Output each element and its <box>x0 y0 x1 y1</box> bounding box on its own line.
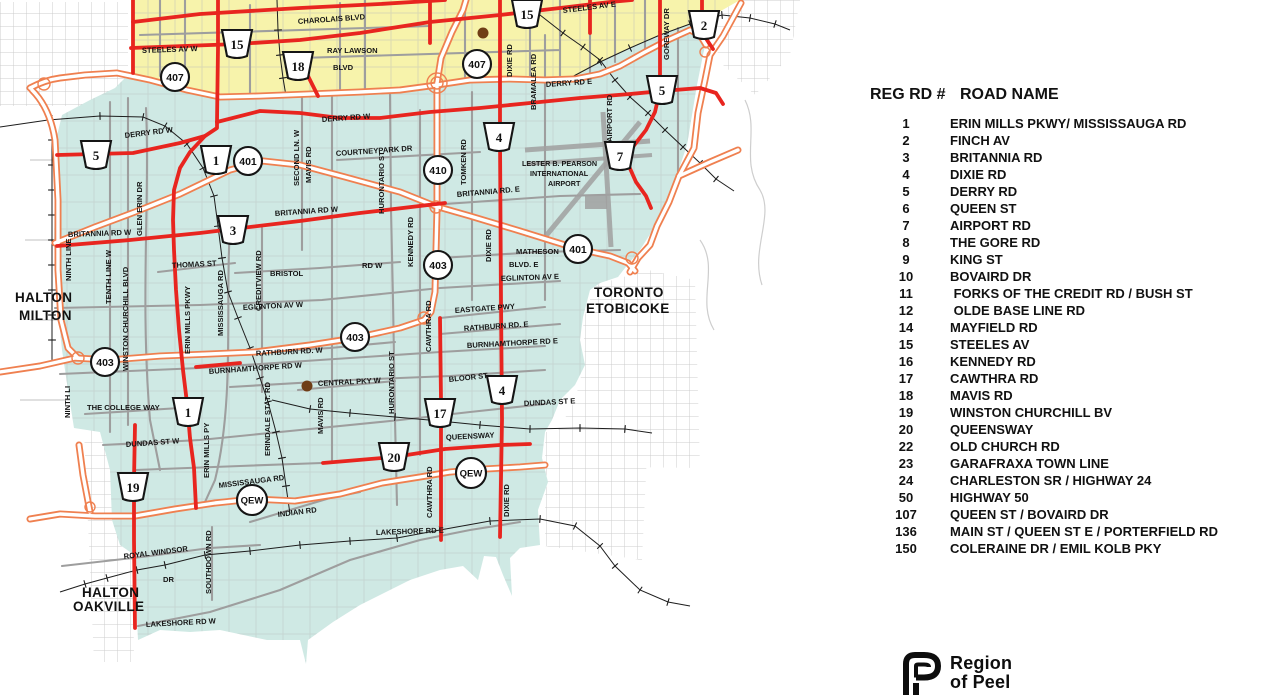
regional-road-shield: 17 <box>425 399 455 427</box>
shield-number: 3 <box>230 223 237 238</box>
road-label: DIXIE RD <box>502 484 511 517</box>
shield-number: 15 <box>231 37 245 52</box>
road-label: TOMKEN RD <box>459 139 468 185</box>
road-label: BRAMALEA RD <box>529 53 538 110</box>
legend-reg-number: 11 <box>868 285 944 302</box>
legend-road-name: GARAFRAXA TOWN LINE <box>944 456 1109 471</box>
shield-number: 7 <box>617 149 624 164</box>
shield-number: 410 <box>429 165 447 177</box>
area-label: OAKVILLE <box>73 599 144 614</box>
legend-col-road-name: ROAD NAME <box>960 86 1059 104</box>
legend-road-name: HIGHWAY 50 <box>944 490 1029 505</box>
shield-number: 18 <box>292 59 306 74</box>
road-label: INTERNATIONAL <box>530 169 589 178</box>
road-label: DUNDAS ST E <box>524 396 576 408</box>
shield-number: 17 <box>434 406 448 421</box>
logo-line2: of Peel <box>950 672 1010 692</box>
road-label: CAWTHRA RD <box>425 466 434 518</box>
legend-rows: 1ERIN MILLS PKWY/ MISSISSAUGA RD2FINCH A… <box>868 115 1268 557</box>
map-canvas: CHAROLAIS BLVDSTEELES AV WSTEELES AV ERA… <box>0 0 860 700</box>
legend-reg-number: 2 <box>868 132 944 149</box>
road-label: AIRPORT RD <box>605 94 614 142</box>
regional-road-shield: 1 <box>201 146 231 174</box>
regional-road-shield: 20 <box>379 443 409 471</box>
legend-row: 17CAWTHRA RD <box>868 370 1268 387</box>
regional-road-shield: 7 <box>605 142 635 170</box>
road-label: BRISTOL <box>270 269 304 278</box>
legend-reg-number: 4 <box>868 166 944 183</box>
legend-reg-number: 50 <box>868 489 944 506</box>
legend-reg-number: 24 <box>868 472 944 489</box>
landmark-dot <box>478 28 489 39</box>
legend-reg-number: 3 <box>868 149 944 166</box>
legend-road-name: QUEEN ST <box>944 201 1016 216</box>
legend-reg-number: 8 <box>868 234 944 251</box>
road-label: BLVD. E <box>509 260 538 269</box>
shield-number: QEW <box>460 469 483 480</box>
legend-row: 7AIRPORT RD <box>868 217 1268 234</box>
road-label: MISSISSAUGA RD <box>216 270 225 336</box>
legend-row: 3BRITANNIA RD <box>868 149 1268 166</box>
highway-shield: QEW <box>456 458 486 488</box>
logo-line1: Region <box>950 653 1012 673</box>
road-label: DR <box>163 575 174 584</box>
legend-reg-number: 5 <box>868 183 944 200</box>
highway-shield: 401 <box>564 235 592 263</box>
area-label: HALTON <box>82 585 139 600</box>
legend-road-name: CAWTHRA RD <box>944 371 1038 386</box>
legend-reg-number: 1 <box>868 115 944 132</box>
logo-text: Region of Peel <box>950 654 1012 692</box>
road-label: CAWTHRA RD <box>424 300 433 352</box>
regional-road-shield: 18 <box>283 52 313 80</box>
shield-number: 401 <box>239 156 257 168</box>
shield-number: 403 <box>429 260 447 272</box>
legend-row: 10BOVAIRD DR <box>868 268 1268 285</box>
shield-number: QEW <box>241 496 264 507</box>
legend-row: 12 OLDE BASE LINE RD <box>868 302 1268 319</box>
road-label: RD W <box>362 261 383 270</box>
shield-number: 5 <box>93 148 100 163</box>
legend-road-name: KENNEDY RD <box>944 354 1036 369</box>
road-label: KENNEDY RD <box>406 216 415 267</box>
legend-row: 150COLERAINE DR / EMIL KOLB PKY <box>868 540 1268 557</box>
road-label: SOUTHDOWN RD <box>204 530 213 594</box>
legend-row: 107QUEEN ST / BOVAIRD DR <box>868 506 1268 523</box>
legend-row: 23GARAFRAXA TOWN LINE <box>868 455 1268 472</box>
legend-reg-number: 18 <box>868 387 944 404</box>
legend-row: 4DIXIE RD <box>868 166 1268 183</box>
legend-road-name: QUEEN ST / BOVAIRD DR <box>944 507 1109 522</box>
highway-shield: 401 <box>234 147 262 175</box>
legend-row: 6QUEEN ST <box>868 200 1268 217</box>
legend-road-name: DERRY RD <box>944 184 1017 199</box>
legend-road-name: BOVAIRD DR <box>944 269 1031 284</box>
legend-road-name: COLERAINE DR / EMIL KOLB PKY <box>944 541 1161 556</box>
regional-road-shield: 5 <box>647 76 677 104</box>
legend-reg-number: 17 <box>868 370 944 387</box>
road-label: NINTH LINE <box>64 238 73 281</box>
legend-road-name: CHARLESTON SR / HIGHWAY 24 <box>944 473 1151 488</box>
road-label: RAY LAWSON <box>327 46 378 55</box>
legend-road-name: WINSTON CHURCHILL BV <box>944 405 1112 420</box>
road-label: ERIN MILLS PKWY <box>183 286 192 354</box>
road-label: ERIN MILLS PY <box>202 423 211 478</box>
legend-road-name: ERIN MILLS PKWY/ MISSISSAUGA RD <box>944 116 1186 131</box>
legend-reg-number: 14 <box>868 319 944 336</box>
legend-row: 20QUEENSWAY <box>868 421 1268 438</box>
road-label: BLVD <box>333 63 354 72</box>
shield-number: 20 <box>388 450 401 465</box>
regional-road-shield: 3 <box>218 216 248 244</box>
highway-shield: 403 <box>424 251 452 279</box>
highway-shield: 410 <box>424 156 452 184</box>
area-label: ETOBICOKE <box>586 301 670 316</box>
shield-number: 401 <box>569 244 587 256</box>
legend-row: 22OLD CHURCH RD <box>868 438 1268 455</box>
legend-reg-number: 136 <box>868 523 944 540</box>
regional-road-shield: 4 <box>484 123 514 151</box>
area-label: TORONTO <box>594 285 664 300</box>
legend-road-name: DIXIE RD <box>944 167 1006 182</box>
legend-reg-number: 23 <box>868 455 944 472</box>
legend-row: 15STEELES AV <box>868 336 1268 353</box>
regional-road-shield: 2 <box>689 11 719 39</box>
road-label: ERINDALE STAT. RD <box>263 382 272 456</box>
legend-road-name: MAIN ST / QUEEN ST E / PORTERFIELD RD <box>944 524 1218 539</box>
shield-number: 407 <box>468 59 486 71</box>
legend-row: 9KING ST <box>868 251 1268 268</box>
legend-row: 11 FORKS OF THE CREDIT RD / BUSH ST <box>868 285 1268 302</box>
legend-road-name: AIRPORT RD <box>944 218 1031 233</box>
legend-row: 50HIGHWAY 50 <box>868 489 1268 506</box>
area-label: MILTON <box>19 308 72 323</box>
road-label: TENTH LINE W <box>104 249 113 304</box>
highway-shield: 407 <box>463 50 491 78</box>
shield-number: 4 <box>496 130 503 145</box>
shield-number: 403 <box>346 332 364 344</box>
legend-panel: REG RD # ROAD NAME 1ERIN MILLS PKWY/ MIS… <box>868 86 1268 108</box>
shield-number: 2 <box>701 18 708 33</box>
road-label: WINSTON CHURCHILL BLVD <box>121 266 130 371</box>
regional-road-shield: 15 <box>222 30 252 58</box>
road-label: DIXIE RD <box>505 44 514 77</box>
legend-reg-number: 15 <box>868 336 944 353</box>
shield-number: 1 <box>185 405 192 420</box>
legend-reg-number: 7 <box>868 217 944 234</box>
legend-row: 5DERRY RD <box>868 183 1268 200</box>
regional-road-shield: 4 <box>487 376 517 404</box>
legend-reg-number: 6 <box>868 200 944 217</box>
shield-number: 407 <box>166 72 184 84</box>
legend-col-reg-rd: REG RD # <box>870 86 946 104</box>
legend-row: 1ERIN MILLS PKWY/ MISSISSAUGA RD <box>868 115 1268 132</box>
regional-road-shield: 19 <box>118 473 148 501</box>
highway-shield: QEW <box>237 485 267 515</box>
shield-number: 4 <box>499 383 506 398</box>
road-label: AIRPORT <box>548 179 581 188</box>
road-label: MAVIS RD <box>304 146 313 183</box>
legend-road-name: STEELES AV <box>944 337 1029 352</box>
shield-number: 15 <box>521 7 535 22</box>
road-label: CREDITVIEW RD <box>254 250 263 311</box>
legend-row: 8THE GORE RD <box>868 234 1268 251</box>
legend-road-name: FORKS OF THE CREDIT RD / BUSH ST <box>944 286 1193 301</box>
shield-number: 5 <box>659 83 666 98</box>
legend-reg-number: 107 <box>868 506 944 523</box>
legend-reg-number: 22 <box>868 438 944 455</box>
legend-reg-number: 20 <box>868 421 944 438</box>
road-label: LESTER B. PEARSON <box>522 159 597 168</box>
legend-row: 136MAIN ST / QUEEN ST E / PORTERFIELD RD <box>868 523 1268 540</box>
peel-logo-icon <box>900 650 944 696</box>
road-label: NINTH LI <box>63 386 72 418</box>
legend-reg-number: 12 <box>868 302 944 319</box>
legend-row: 2FINCH AV <box>868 132 1268 149</box>
legend-row: 14MAYFIELD RD <box>868 319 1268 336</box>
legend-reg-number: 16 <box>868 353 944 370</box>
legend-reg-number: 9 <box>868 251 944 268</box>
regional-road-shield: 1 <box>173 398 203 426</box>
landmark-dot <box>302 381 313 392</box>
legend-road-name: THE GORE RD <box>944 235 1040 250</box>
road-label: HURONTARIO ST <box>377 151 386 214</box>
legend-road-name: FINCH AV <box>944 133 1010 148</box>
road-label: MAVIS RD <box>316 397 325 434</box>
road-label: MATHESON <box>516 247 559 256</box>
legend-road-name: MAVIS RD <box>944 388 1013 403</box>
shield-number: 1 <box>213 153 220 168</box>
road-label: SECOND LN. W <box>292 129 301 186</box>
road-label: GOREWAY DR <box>662 8 671 60</box>
legend-reg-number: 10 <box>868 268 944 285</box>
legend-header: REG RD # ROAD NAME <box>868 86 1268 108</box>
legend-road-name: MAYFIELD RD <box>944 320 1038 335</box>
highway-shield: 403 <box>91 348 119 376</box>
region-of-peel-logo: Region of Peel <box>900 650 1012 696</box>
legend-row: 19WINSTON CHURCHILL BV <box>868 404 1268 421</box>
area-label: HALTON <box>15 290 72 305</box>
legend-road-name: KING ST <box>944 252 1003 267</box>
road-label: DIXIE RD <box>484 229 493 262</box>
road-label: THE COLLEGE WAY <box>87 403 160 412</box>
peel-region-road-map-document: CHAROLAIS BLVDSTEELES AV WSTEELES AV ERA… <box>0 0 1280 700</box>
legend-road-name: OLDE BASE LINE RD <box>944 303 1085 318</box>
highway-shield: 407 <box>161 63 189 91</box>
legend-row: 18MAVIS RD <box>868 387 1268 404</box>
regional-road-shield: 5 <box>81 141 111 169</box>
legend-reg-number: 150 <box>868 540 944 557</box>
legend-row: 16KENNEDY RD <box>868 353 1268 370</box>
highway-shield: 403 <box>341 323 369 351</box>
legend-reg-number: 19 <box>868 404 944 421</box>
shield-number: 19 <box>127 480 141 495</box>
legend-road-name: OLD CHURCH RD <box>944 439 1060 454</box>
road-label: HURONTARIO ST <box>387 351 396 414</box>
legend-row: 24CHARLESTON SR / HIGHWAY 24 <box>868 472 1268 489</box>
road-label: GLEN ERIN DR <box>135 181 144 236</box>
regional-road-shield: 15 <box>512 0 542 28</box>
shield-number: 403 <box>96 357 114 369</box>
legend-road-name: BRITANNIA RD <box>944 150 1042 165</box>
legend-road-name: QUEENSWAY <box>944 422 1033 437</box>
